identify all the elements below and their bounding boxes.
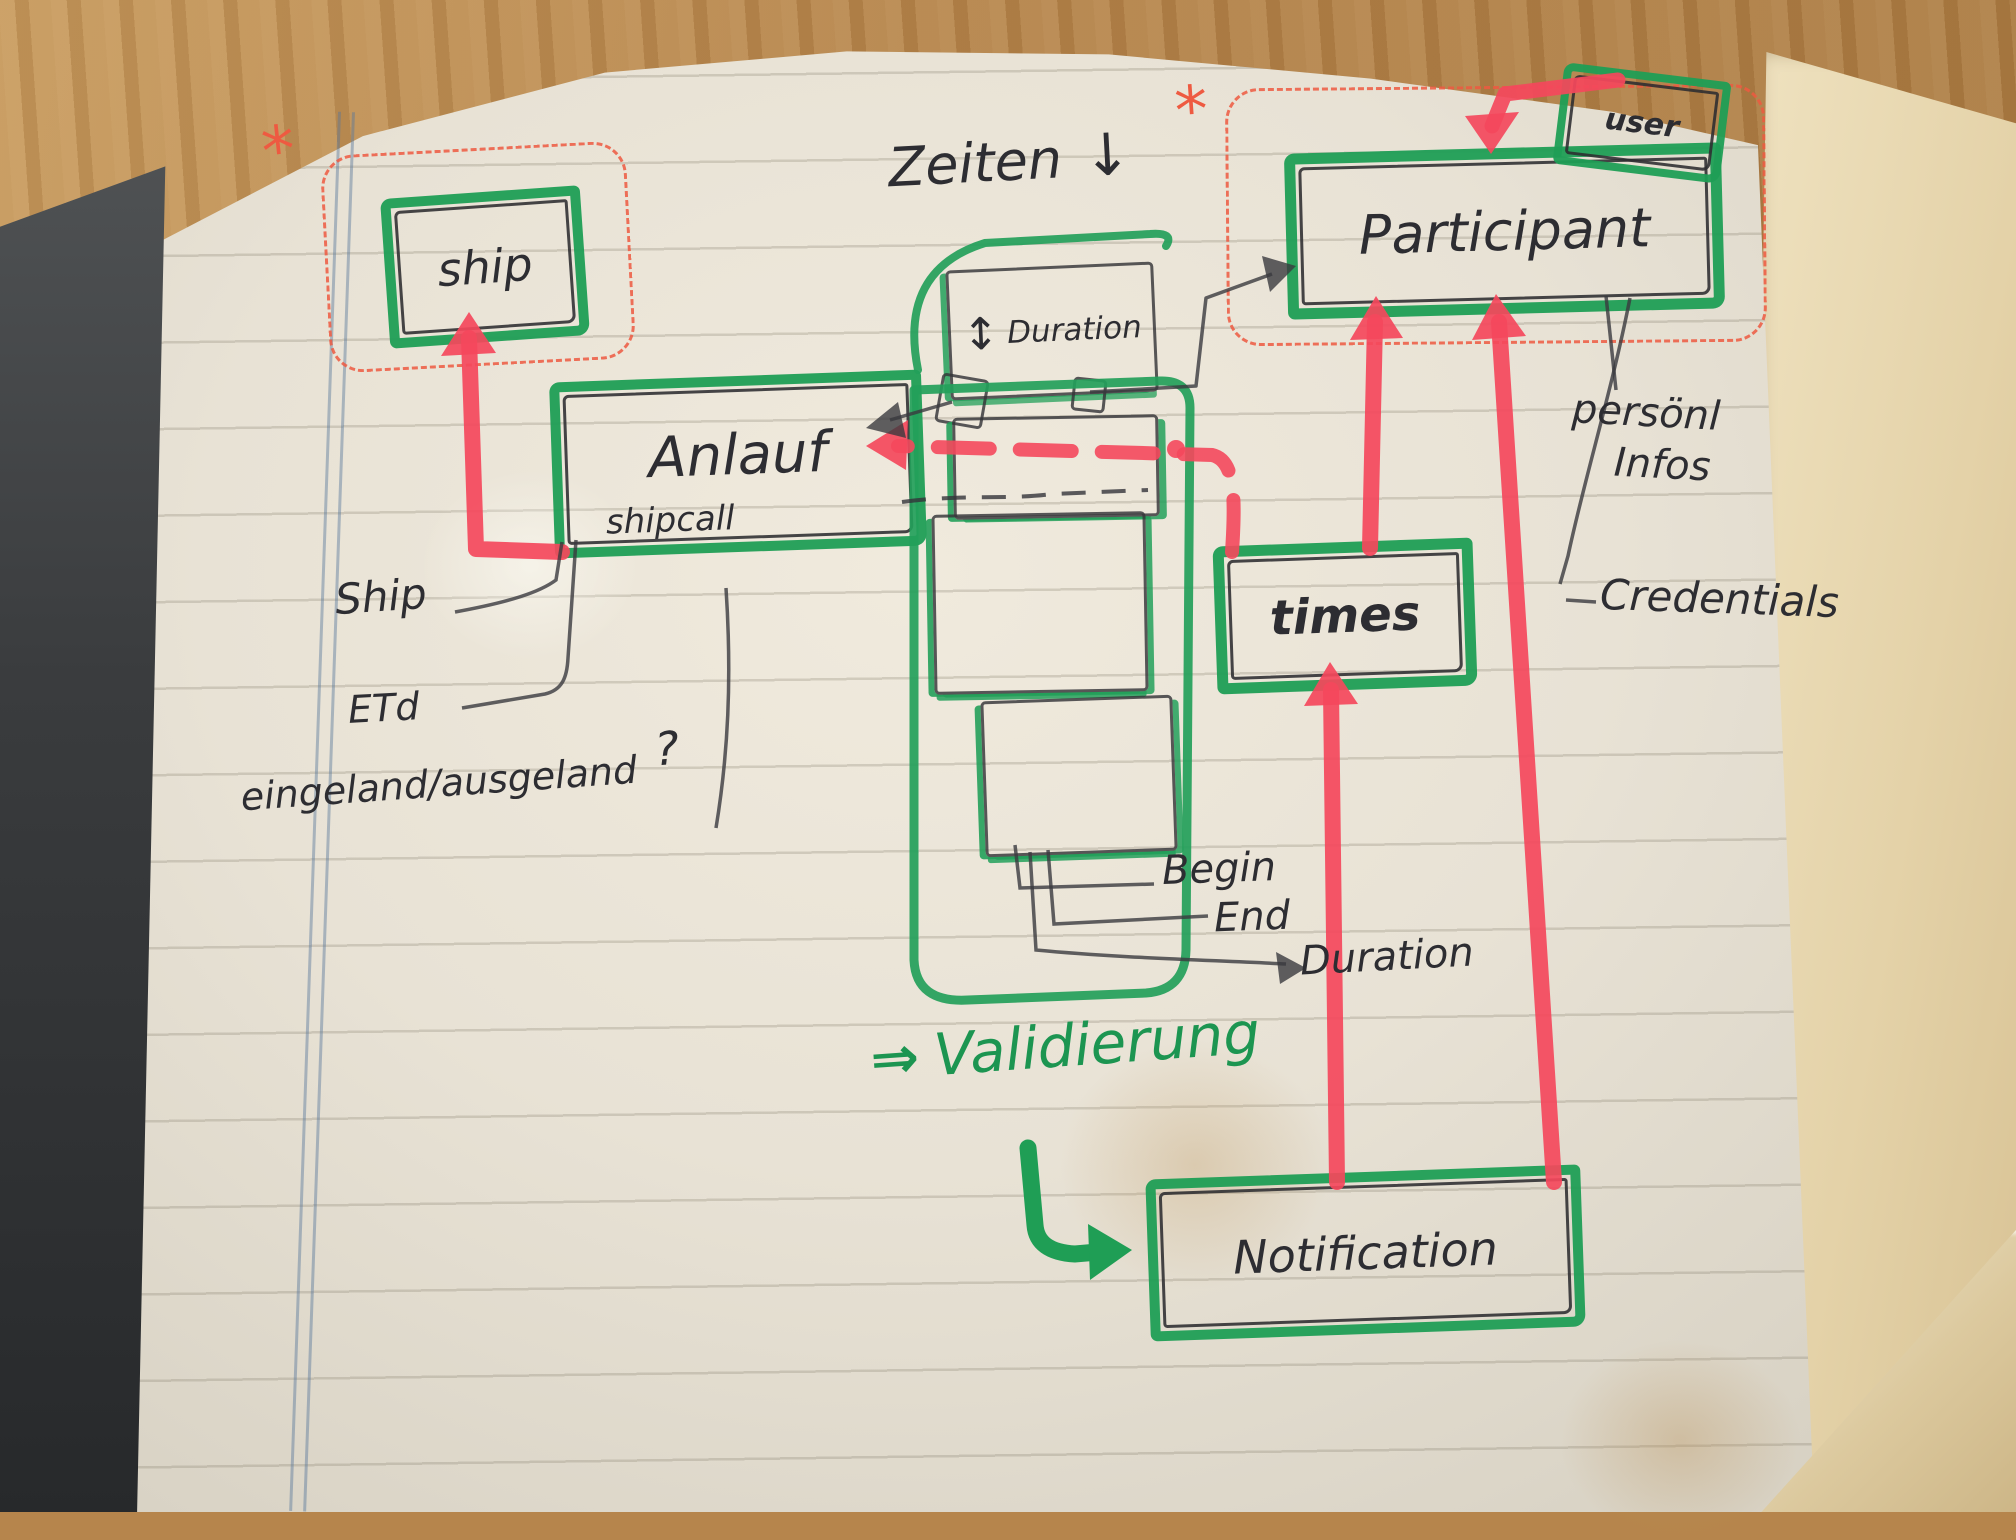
zeiten-down-arrow-icon: ↓ <box>1081 120 1133 190</box>
node-times-label: times <box>1269 585 1421 646</box>
node-ship-label: ship <box>436 237 535 298</box>
coffee-stain <box>1560 1340 1800 1540</box>
zeiten-label: Zeiten <box>887 127 1064 199</box>
node-anlauf-label: Anlauf <box>647 419 828 490</box>
node-duration-label: Duration <box>1006 309 1142 351</box>
node-participant-inner: Participant <box>1298 157 1710 306</box>
node-anlauf: Anlauf shipcall <box>549 370 927 559</box>
end-attribute-label: End <box>1213 893 1291 942</box>
node-user-label: user <box>1603 101 1681 145</box>
node-notification-label: Notification <box>1232 1221 1498 1284</box>
asterisk-participant: * <box>1172 71 1210 150</box>
node-times: times <box>1212 538 1477 695</box>
node-user-inner: user <box>1565 74 1720 171</box>
node-notification: Notification <box>1145 1164 1585 1341</box>
duration-updown-arrow-icon: ↕ <box>961 308 1000 361</box>
node-participant-label: Participant <box>1358 196 1651 267</box>
personal-infos-label-line1: persönl <box>1571 386 1721 440</box>
duration-connector-square-right <box>1070 376 1107 413</box>
node-anlauf-inner: Anlauf shipcall <box>562 383 913 545</box>
zeiten-annotation: Zeiten ↓ <box>886 120 1133 201</box>
empty-record-box-2 <box>931 511 1148 695</box>
inout-question-mark: ? <box>653 721 681 777</box>
node-ship: ship <box>380 185 590 349</box>
node-ship-inner: ship <box>394 199 576 335</box>
begin-attribute-label: Begin <box>1161 844 1276 894</box>
validierung-implies-arrow-icon: ⇒ <box>868 1022 921 1093</box>
personal-infos-label-line2: Infos <box>1613 440 1712 491</box>
eta-attribute-label: ETd <box>347 684 421 732</box>
notebook-photo: ship Anlauf shipcall ↕ Duration Particip… <box>0 0 2016 1512</box>
empty-record-box-1 <box>952 414 1160 520</box>
duration-attribute-label: Duration <box>1299 929 1475 984</box>
credentials-label: Credentials <box>1599 570 1840 627</box>
node-notification-inner: Notification <box>1159 1178 1572 1328</box>
node-times-inner: times <box>1227 552 1463 680</box>
node-anlauf-sublabel: shipcall <box>605 498 735 542</box>
node-user: user <box>1552 62 1731 184</box>
ship-attribute-label: Ship <box>333 569 428 624</box>
empty-record-box-3 <box>980 695 1177 858</box>
